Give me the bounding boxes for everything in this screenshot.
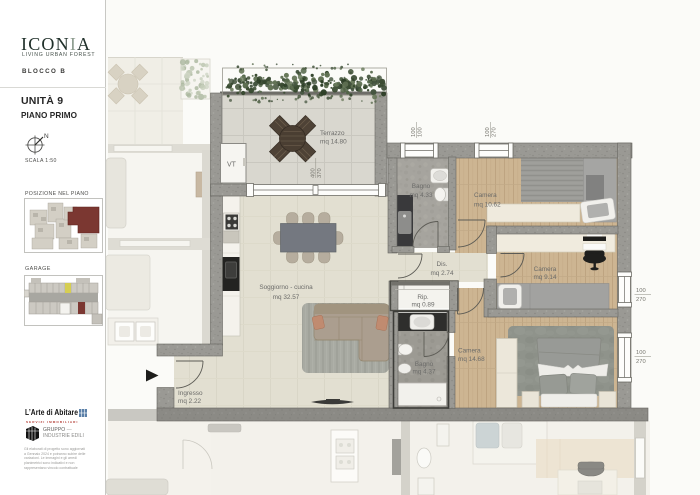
svg-text:mq 32.57: mq 32.57 [273, 294, 300, 301]
svg-text:mq 0.89: mq 0.89 [411, 302, 435, 309]
svg-text:100: 100 [636, 350, 646, 356]
svg-text:270: 270 [636, 359, 646, 365]
svg-text:Camera: Camera [458, 348, 481, 355]
svg-text:370: 370 [317, 168, 323, 178]
svg-text:Camera: Camera [534, 266, 557, 273]
svg-text:mq 9.14: mq 9.14 [533, 274, 557, 281]
svg-text:VT: VT [227, 162, 237, 169]
svg-text:mq 14.80: mq 14.80 [320, 139, 347, 146]
svg-text:N: N [44, 133, 49, 140]
svg-text:Bagno: Bagno [412, 183, 431, 190]
svg-text:mq 10.62: mq 10.62 [474, 202, 501, 209]
svg-text:100: 100 [636, 288, 646, 294]
svg-text:Rip.: Rip. [417, 294, 429, 301]
svg-text:Soggiorno - cucina: Soggiorno - cucina [259, 284, 313, 291]
svg-text:270: 270 [492, 127, 498, 137]
svg-text:Dis.: Dis. [436, 261, 447, 268]
svg-text:mq 2.22: mq 2.22 [178, 398, 202, 405]
svg-text:100: 100 [418, 127, 424, 137]
svg-text:270: 270 [636, 297, 646, 303]
svg-text:mq 4.33: mq 4.33 [409, 192, 433, 199]
svg-text:mq 2.74: mq 2.74 [430, 270, 454, 277]
svg-text:Camera: Camera [474, 192, 497, 199]
svg-text:Terrazzo: Terrazzo [320, 130, 345, 137]
svg-text:Ingresso: Ingresso [178, 390, 203, 397]
svg-text:mq 4.37: mq 4.37 [412, 369, 436, 376]
svg-text:mq 14.68: mq 14.68 [458, 356, 485, 363]
svg-text:Bagno: Bagno [415, 361, 434, 368]
